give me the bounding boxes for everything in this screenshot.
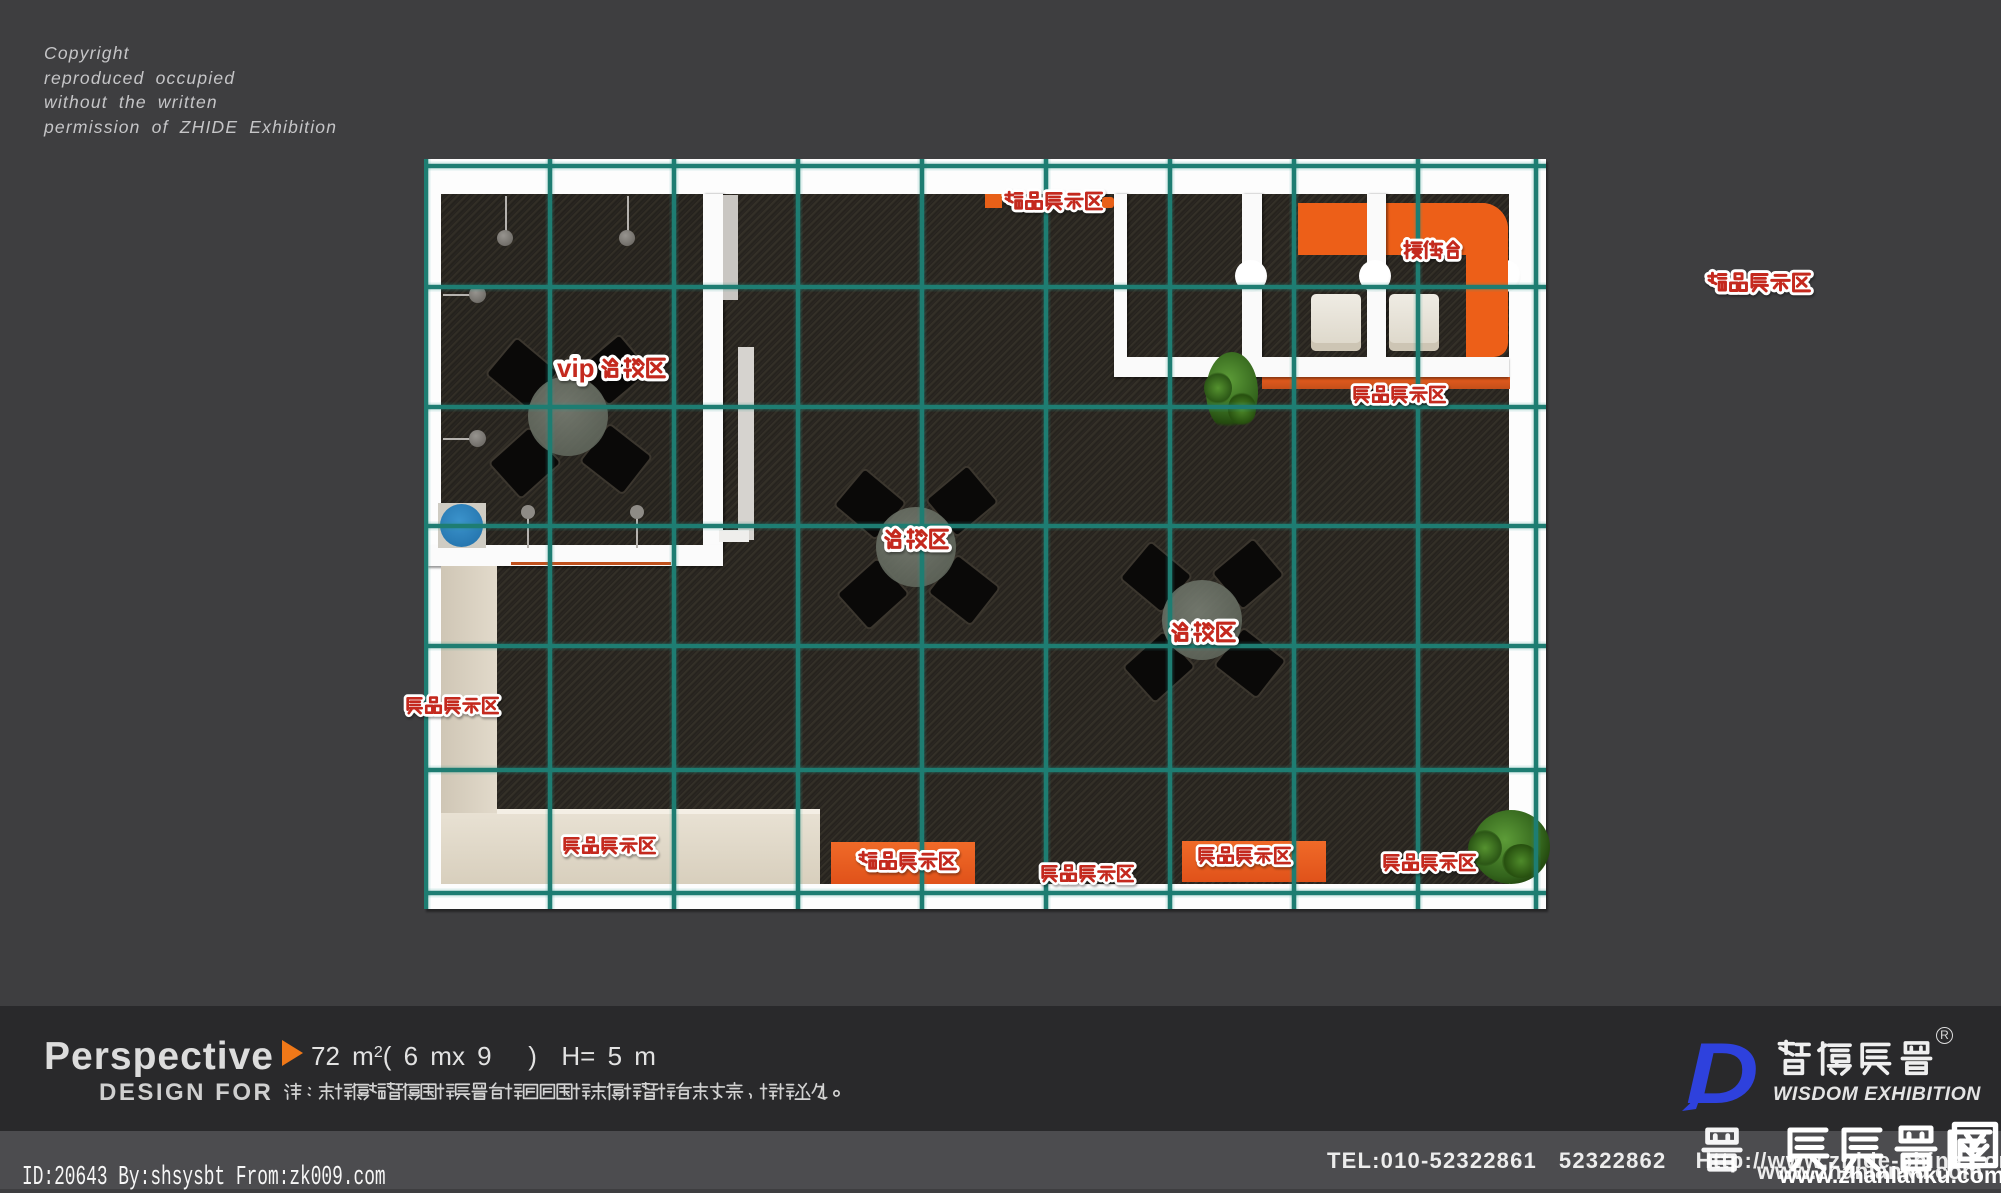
svg-text:vip: vip <box>557 353 595 383</box>
